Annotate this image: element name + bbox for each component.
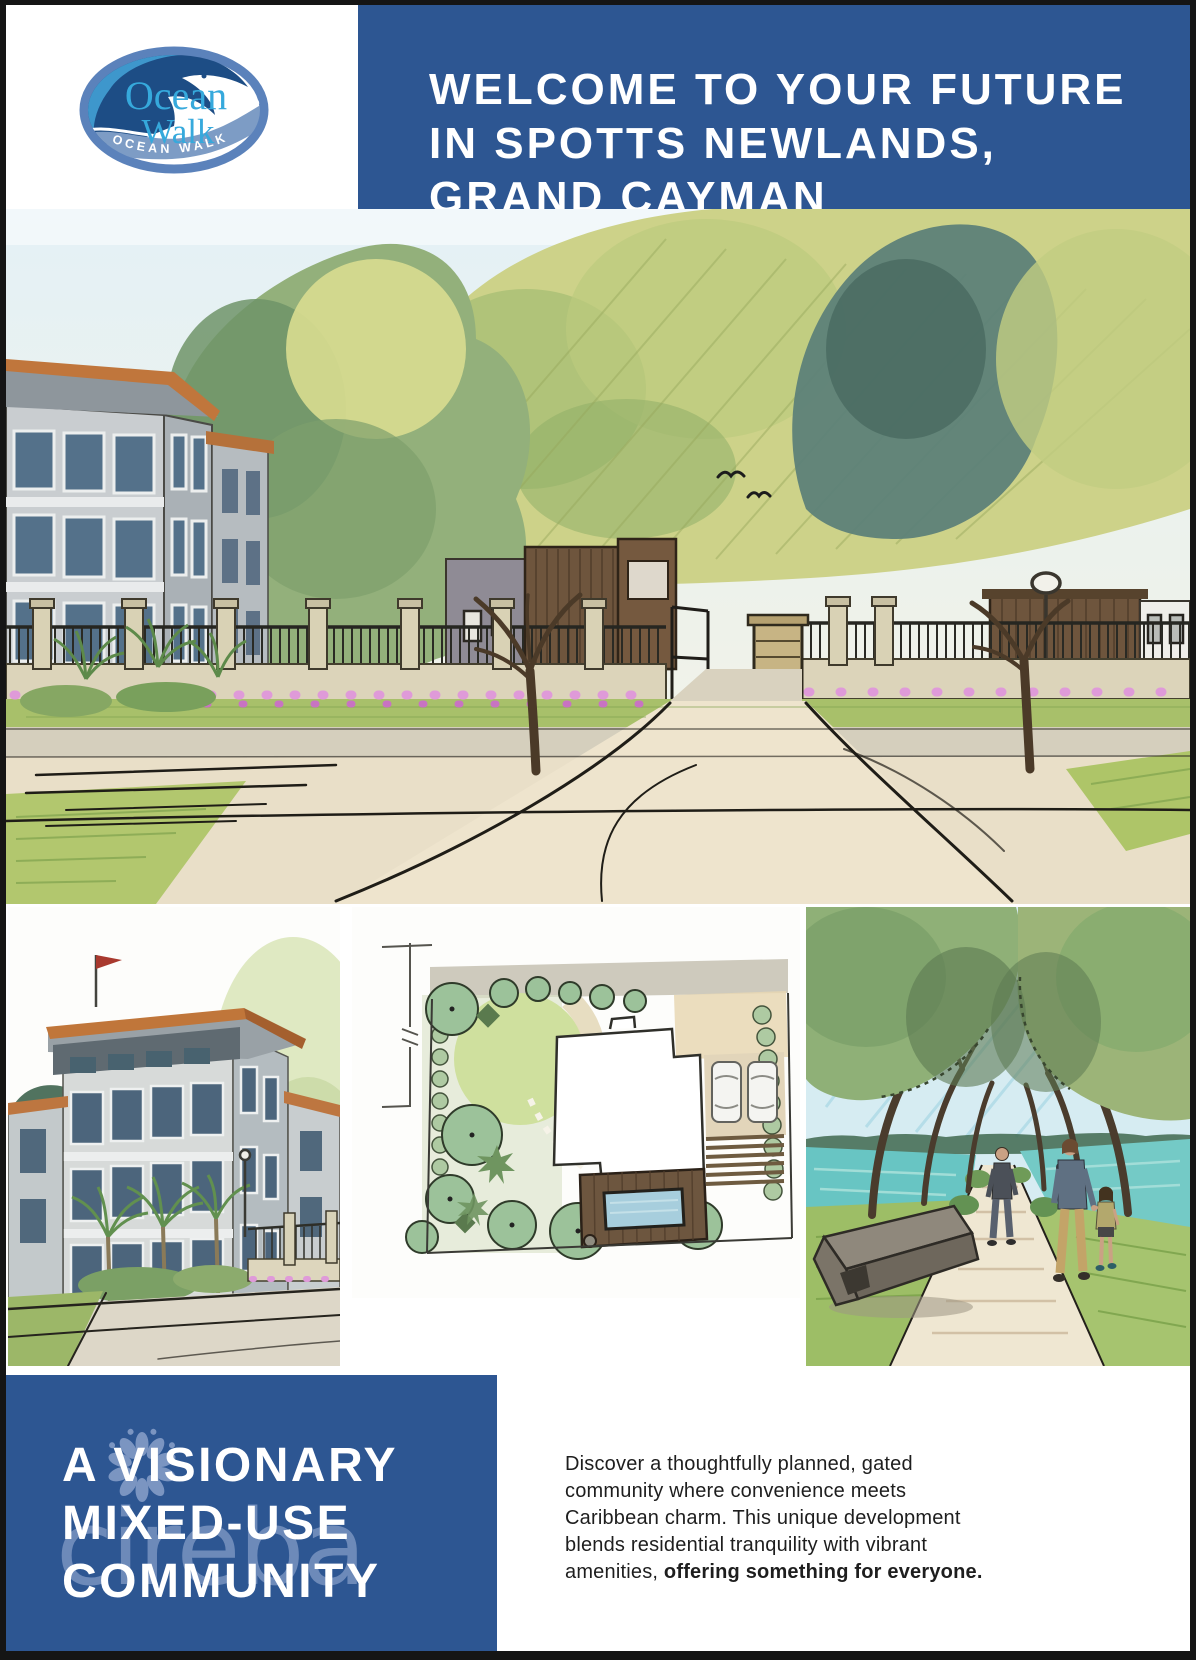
walkway-illustration [806, 907, 1190, 1366]
description-line: community where convenience meets [565, 1478, 1015, 1505]
building-illustration [8, 907, 340, 1366]
community-block: cireba A VISIONARY MIXED-USE COMMUNITY [6, 1375, 497, 1651]
description-line: Discover a thoughtfully planned, gated [565, 1451, 1015, 1478]
description-line: blends residential tranquility with vibr… [565, 1532, 1015, 1559]
flyer-inner: Ocean Walk OCEAN WALK WELCOME TO YOUR FU… [6, 5, 1190, 1651]
ocean-walk-logo: Ocean Walk OCEAN WALK [76, 45, 272, 177]
title-line-2: IN SPOTTS NEWLANDS, [429, 117, 1127, 171]
community-heading-line-2: MIXED-USE [62, 1495, 398, 1553]
community-heading-line-3: COMMUNITY [62, 1553, 398, 1611]
description-line-last: amenities, offering something for everyo… [565, 1559, 1015, 1586]
page-title: WELCOME TO YOUR FUTURE IN SPOTTS NEWLAND… [429, 63, 1127, 225]
pool [604, 1189, 684, 1229]
hero-illustration [6, 209, 1190, 904]
title-line-1: WELCOME TO YOUR FUTURE [429, 63, 1127, 117]
flyer-page: Ocean Walk OCEAN WALK WELCOME TO YOUR FU… [0, 0, 1196, 1660]
description-bold-text: offering something for everyone. [664, 1561, 983, 1583]
ocean-walk-logo-art: Ocean Walk OCEAN WALK [76, 45, 272, 177]
description-paragraph: Discover a thoughtfully planned, gated c… [565, 1451, 1015, 1586]
community-heading-line-1: A VISIONARY [62, 1437, 398, 1495]
description-line: Caribbean charm. This unique development [565, 1505, 1015, 1532]
site-plan-illustration [352, 907, 800, 1298]
community-heading: A VISIONARY MIXED-USE COMMUNITY [62, 1437, 398, 1611]
